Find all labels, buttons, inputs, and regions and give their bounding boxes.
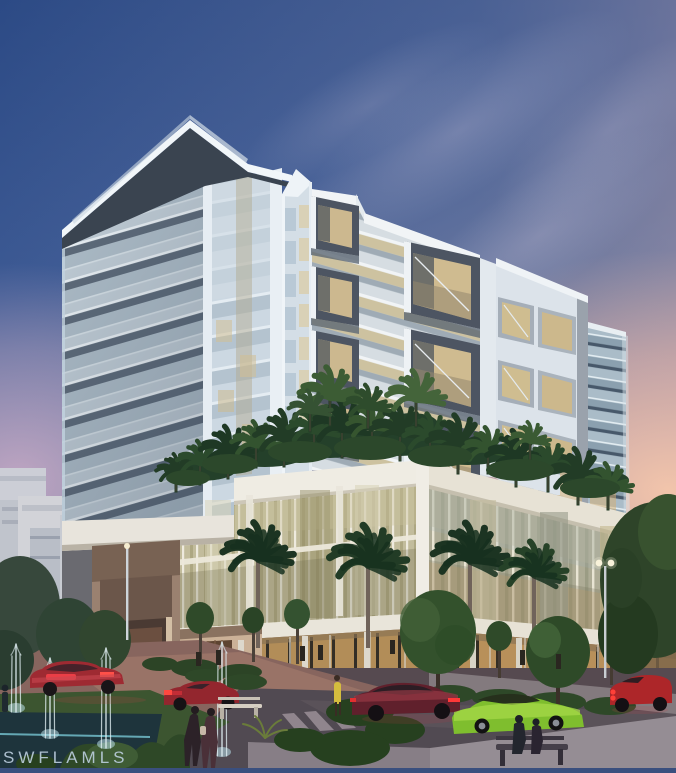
svg-text:SWFLAMLS: SWFLAMLS (3, 748, 129, 767)
